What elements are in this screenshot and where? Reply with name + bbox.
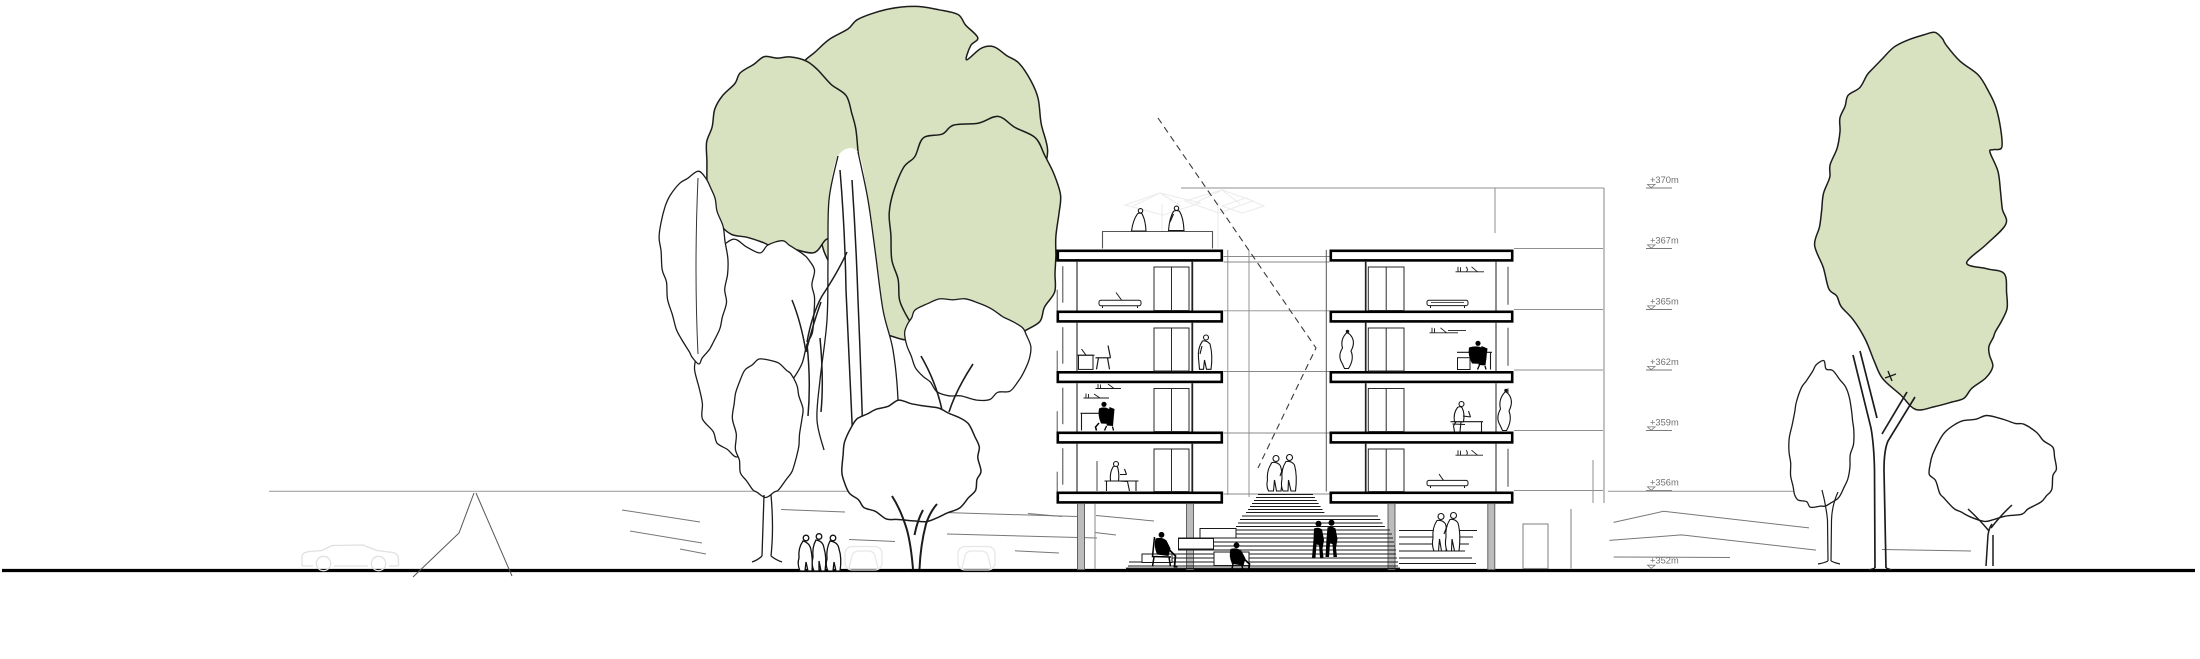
- svg-text:+359m: +359m: [1650, 418, 1679, 428]
- svg-text:+356m: +356m: [1650, 478, 1679, 488]
- svg-text:+365m: +365m: [1650, 297, 1679, 307]
- svg-text:+367m: +367m: [1650, 236, 1679, 246]
- svg-text:+370m: +370m: [1650, 175, 1679, 185]
- svg-text:+362m: +362m: [1650, 357, 1679, 367]
